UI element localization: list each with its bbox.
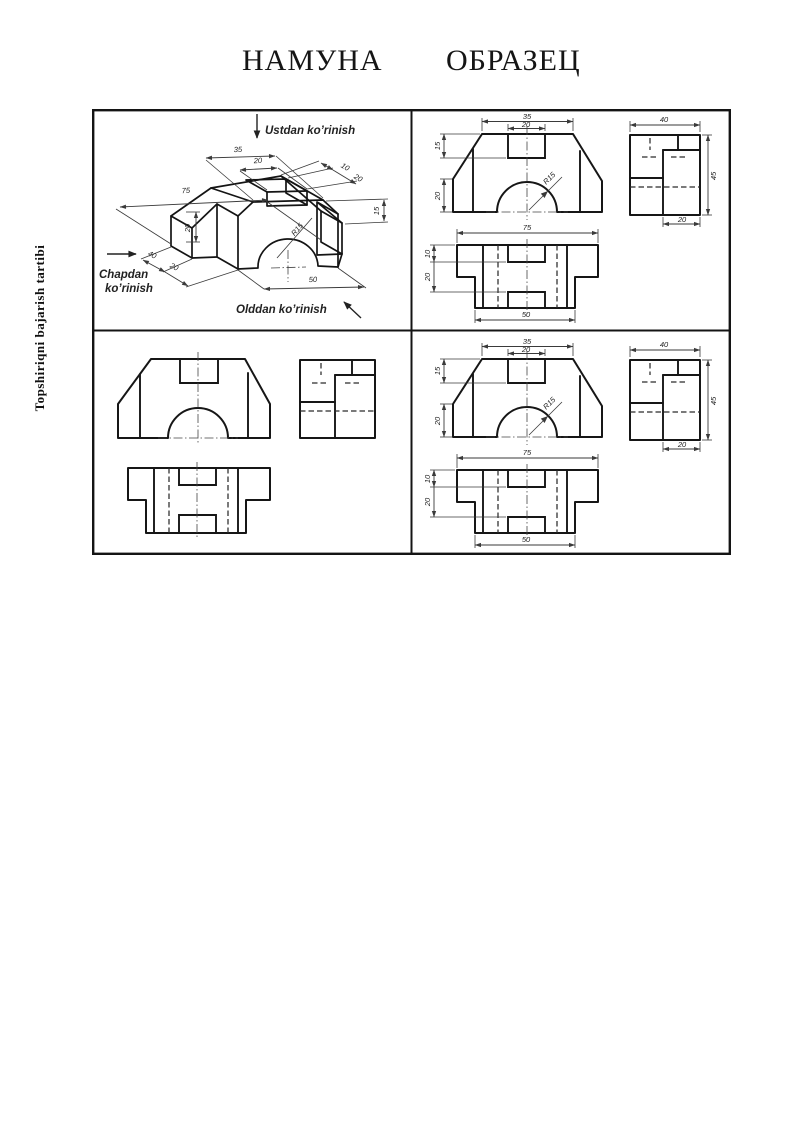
plan-dim-length: 75 xyxy=(523,223,532,232)
side-dim-step: 20 xyxy=(677,215,687,224)
ortho-panel-dimensioned-copy xyxy=(423,337,718,548)
front-view-plain xyxy=(118,352,270,445)
title-obrazec: ОБРАЗЕЦ xyxy=(446,44,581,78)
front-view: R15 35 20 15 20 xyxy=(433,112,602,220)
side-caption: Topshiriqni bajarish tartibi xyxy=(32,228,56,428)
title-namuna: НАМУНА xyxy=(242,44,383,78)
iso-dim-length: 75 xyxy=(181,186,191,195)
front-dim-notch-depth: 15 xyxy=(433,141,442,150)
plan-dim-bottom-width: 50 xyxy=(522,310,531,319)
ortho-panel-plain xyxy=(118,352,375,539)
iso-arch-centerline-h xyxy=(271,267,306,268)
side-dim-height: 45 xyxy=(709,171,718,180)
iso-radius-leader xyxy=(277,218,312,258)
top-view-plain xyxy=(128,462,270,539)
iso-dim-front-depth: 20 xyxy=(167,260,180,273)
side-view-plain xyxy=(300,360,375,438)
iso-body xyxy=(171,176,342,269)
drawing-grid: Ustdan ko’rinish Chapdan ko’rinish Oldda… xyxy=(92,109,731,555)
iso-dim-notch-width: 20 xyxy=(252,156,263,166)
top-view: 75 10 20 50 xyxy=(423,223,598,323)
iso-dimensions: 35 20 75 20 xyxy=(116,145,388,289)
front-dim-left-height: 20 xyxy=(433,191,442,201)
front-dim-notch-width: 20 xyxy=(521,120,531,129)
grid-frame xyxy=(93,110,730,554)
side-view: 40 45 20 xyxy=(630,115,718,227)
iso-dim-top-width: 35 xyxy=(234,145,243,154)
iso-dim-depth: 40 xyxy=(146,249,158,261)
iso-panel: Ustdan ko’rinish Chapdan ko’rinish Oldda… xyxy=(99,114,388,318)
side-dim-width: 40 xyxy=(660,115,669,124)
front-view-arrow-icon xyxy=(344,302,361,318)
iso-dim-bottom-width: 50 xyxy=(309,275,318,284)
iso-dim-notch-offset: 10 xyxy=(339,161,351,173)
plan-dim-offset: 10 xyxy=(423,249,432,258)
ortho-panel-dimensioned: R15 35 20 15 20 xyxy=(423,112,718,323)
label-left-view-2: ko’rinish xyxy=(105,283,153,295)
label-left-view-1: Chapdan xyxy=(99,269,148,281)
label-front-view: Olddan ko’rinish xyxy=(236,304,327,316)
iso-dim-notch-depth: 15 xyxy=(372,206,381,215)
worksheet-page: НАМУНА ОБРАЗЕЦ Topshiriqni bajarish tart… xyxy=(0,0,800,1131)
iso-dim-left-height: 20 xyxy=(183,223,192,233)
plan-dim-step: 20 xyxy=(423,272,432,282)
label-top-view: Ustdan ko’rinish xyxy=(265,125,355,137)
